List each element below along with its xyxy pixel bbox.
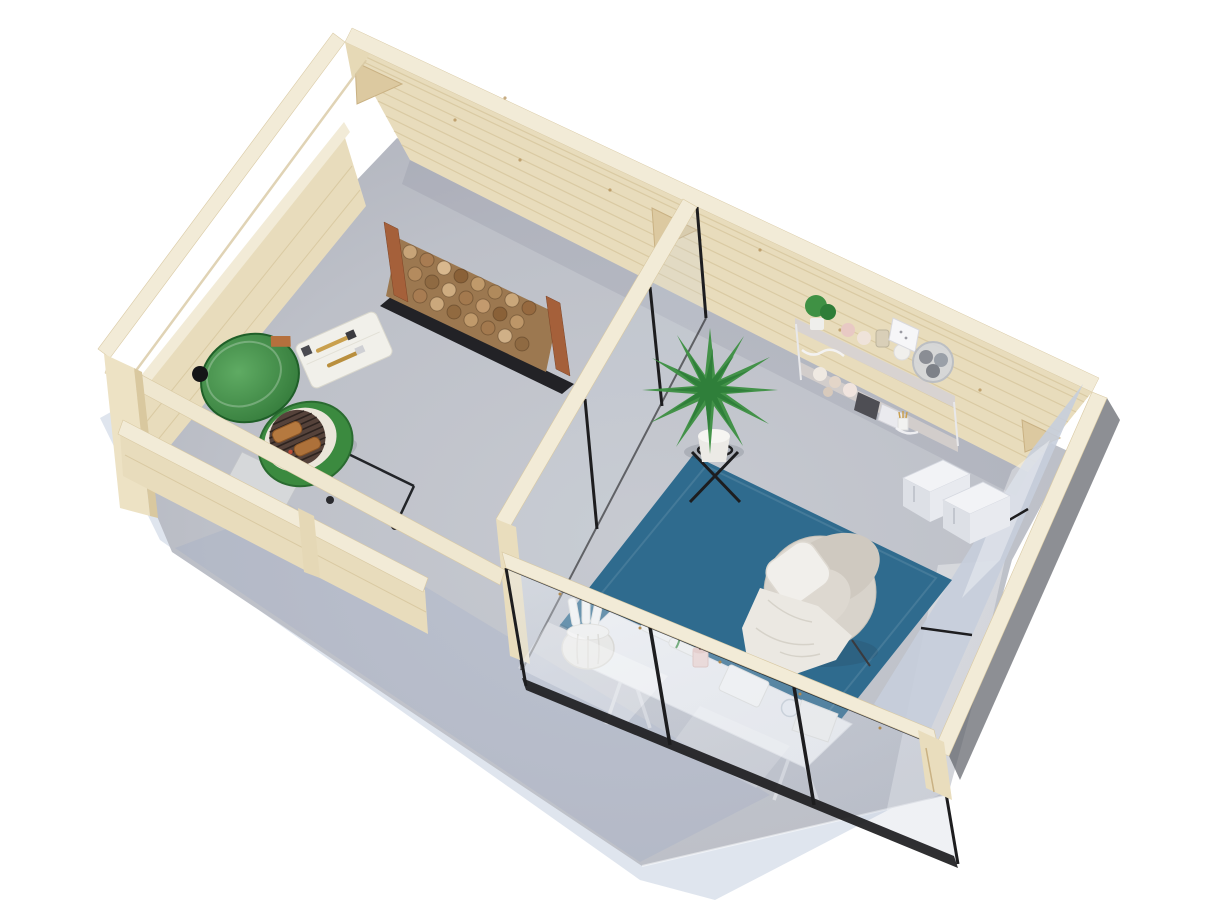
wood-knot	[978, 388, 981, 391]
log-end	[505, 293, 519, 307]
plant-pot-rim	[698, 429, 730, 443]
brush-cup	[898, 418, 908, 430]
nail-dot	[639, 627, 642, 630]
log-end	[488, 285, 502, 299]
nail-dot	[559, 593, 562, 596]
yarn-ball	[813, 367, 827, 381]
log-end	[430, 297, 444, 311]
outlet-socket	[900, 331, 903, 334]
log-end	[493, 307, 507, 321]
log-end	[471, 277, 485, 291]
yarn-ball	[823, 387, 833, 397]
glass-jar	[876, 330, 889, 347]
log-end	[425, 275, 439, 289]
wood-knot	[758, 248, 761, 251]
render-canvas	[0, 0, 1214, 911]
shelf-plant-foliage	[820, 304, 836, 320]
log-end	[476, 299, 490, 313]
wood-knot	[608, 188, 611, 191]
log-end	[481, 321, 495, 335]
cream-pot	[857, 331, 871, 345]
log-end	[464, 313, 478, 327]
yarn-ball-grey	[919, 350, 933, 364]
log-end	[420, 253, 434, 267]
log-end	[510, 315, 524, 329]
log-end	[498, 329, 512, 343]
wood-knot	[453, 118, 456, 121]
pink-pot	[841, 323, 855, 337]
nail-dot	[799, 693, 802, 696]
log-end	[515, 337, 529, 351]
wood-knot	[518, 158, 521, 161]
grill-cart-wheel	[326, 496, 334, 504]
log-end	[403, 245, 417, 259]
log-end	[408, 267, 422, 281]
log-end	[459, 291, 473, 305]
log-end	[454, 269, 468, 283]
shelf-plant-pot	[810, 318, 824, 330]
log-end	[413, 289, 427, 303]
wood-knot	[503, 96, 506, 99]
yarn-ball-grey	[926, 364, 940, 378]
nail-dot	[879, 727, 882, 730]
outlet-socket	[905, 337, 908, 340]
yarn-ball	[843, 383, 857, 397]
log-end	[522, 301, 536, 315]
log-end	[442, 283, 456, 297]
scene-render	[0, 0, 1214, 911]
log-end	[437, 261, 451, 275]
log-end	[447, 305, 461, 319]
yarn-ball	[829, 376, 841, 388]
nail-dot	[719, 661, 722, 664]
